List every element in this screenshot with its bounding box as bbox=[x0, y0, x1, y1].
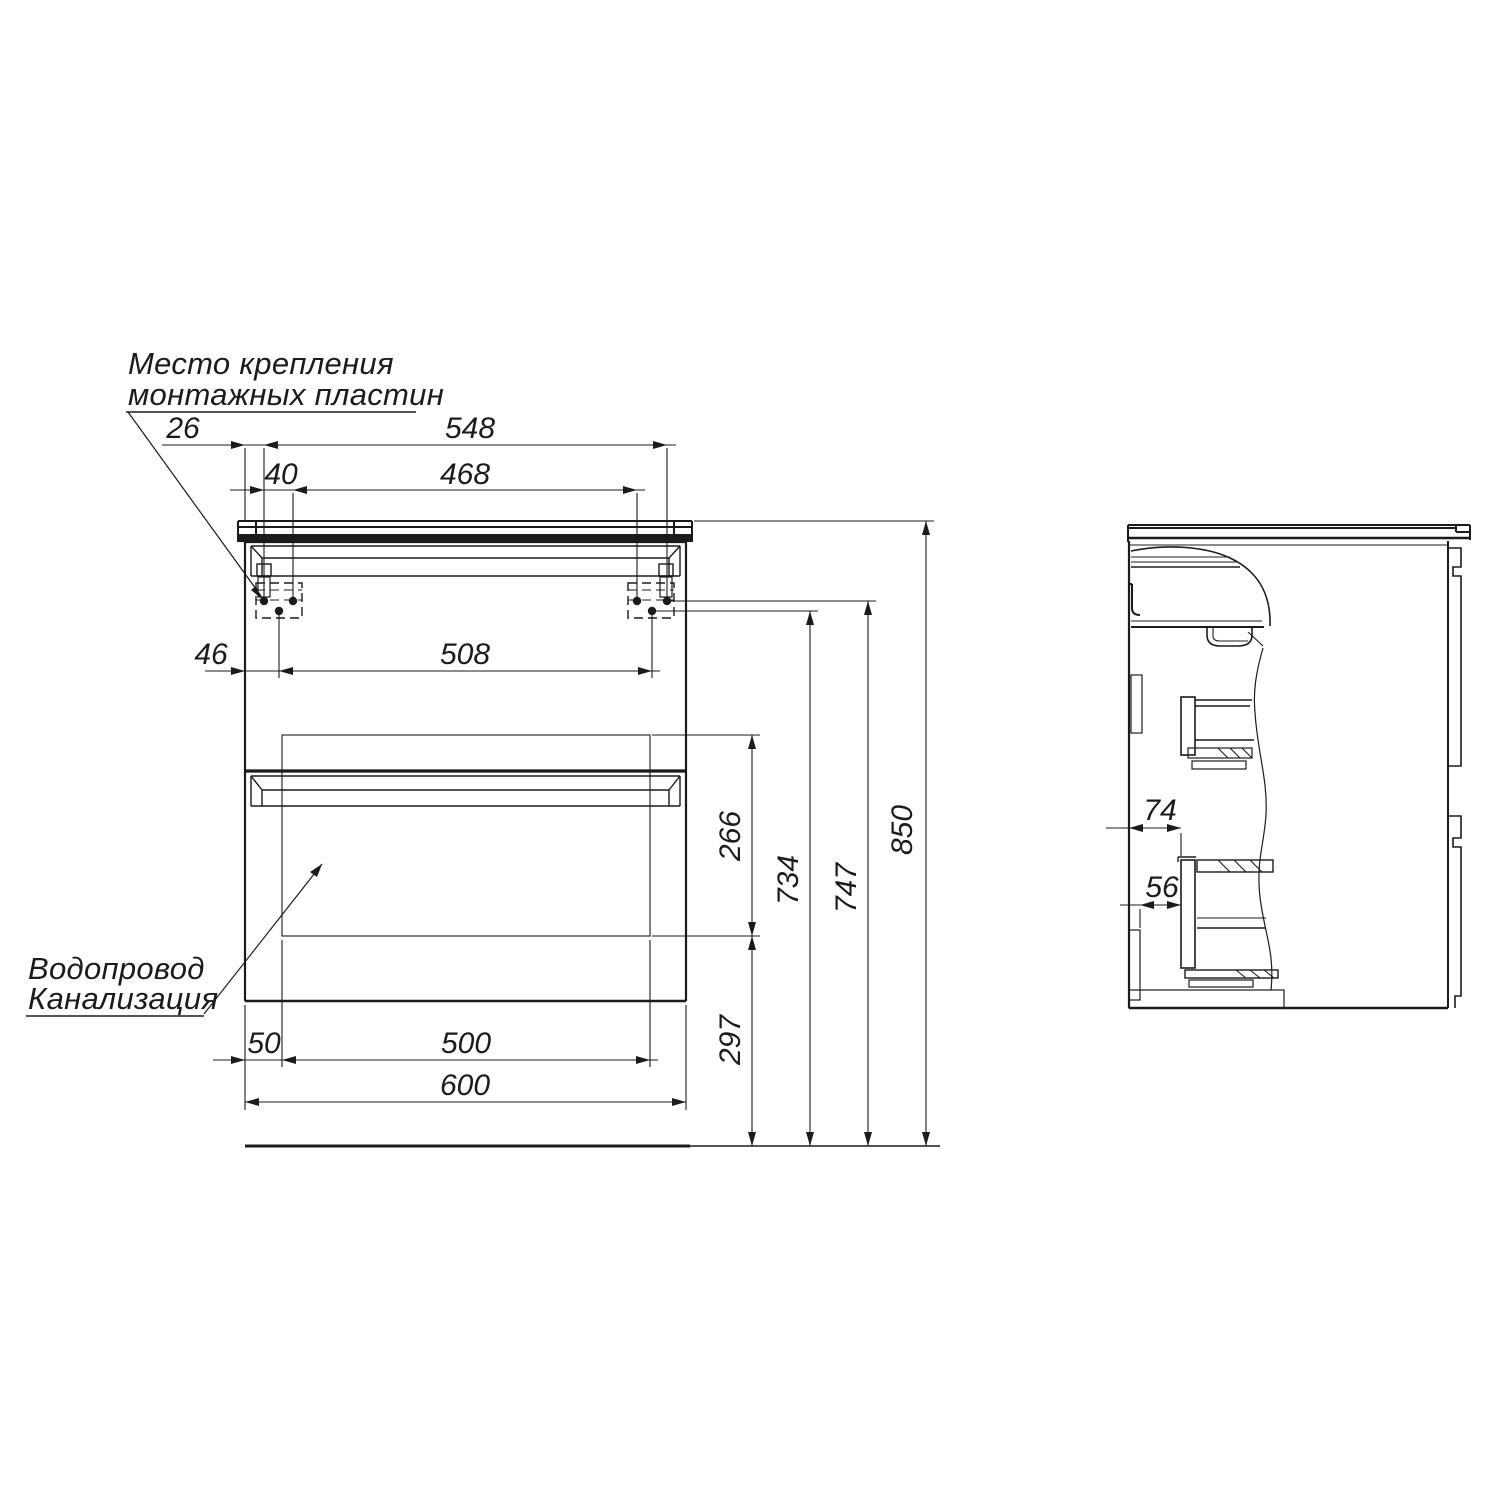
dim-734-label: 734 bbox=[772, 855, 805, 905]
mounting-hole-dot bbox=[648, 607, 656, 615]
plumbing-note-line2: Канализация bbox=[28, 981, 218, 1016]
dim-56-label: 56 bbox=[1145, 871, 1179, 904]
mounting-hole-dot bbox=[633, 597, 641, 605]
mounting-hole-dot bbox=[663, 597, 671, 605]
dim-747-label: 747 bbox=[830, 862, 863, 913]
dim-468-label: 468 bbox=[440, 458, 490, 491]
dim-600-label: 600 bbox=[440, 1069, 490, 1102]
dim-548-label: 548 bbox=[445, 412, 495, 445]
dim-266-label: 266 bbox=[714, 811, 747, 862]
worktop-edge-band bbox=[238, 534, 692, 542]
dim-297-label: 297 bbox=[714, 1014, 747, 1066]
mounting-note-line2: монтажных пластин bbox=[128, 377, 444, 412]
dim-508-label: 508 bbox=[440, 638, 490, 671]
mounting-note-line1: Место крепления bbox=[128, 346, 394, 381]
mounting-hole-dot bbox=[289, 597, 297, 605]
dim-850-label: 850 bbox=[886, 805, 919, 855]
mounting-hole-dot bbox=[275, 607, 283, 615]
drawing-page: 26 548 40 468 46 508 50 500 600 266 297 … bbox=[0, 0, 1500, 1500]
dim-50-label: 50 bbox=[247, 1027, 281, 1060]
dim-40-label: 40 bbox=[264, 458, 298, 491]
dim-500-label: 500 bbox=[441, 1027, 491, 1060]
technical-drawing: 26 548 40 468 46 508 50 500 600 266 297 … bbox=[0, 0, 1500, 1500]
dim-26-label: 26 bbox=[165, 412, 200, 445]
dim-74-label: 74 bbox=[1143, 794, 1176, 827]
dim-46-label: 46 bbox=[194, 638, 228, 671]
canvas-background bbox=[0, 0, 1500, 1500]
